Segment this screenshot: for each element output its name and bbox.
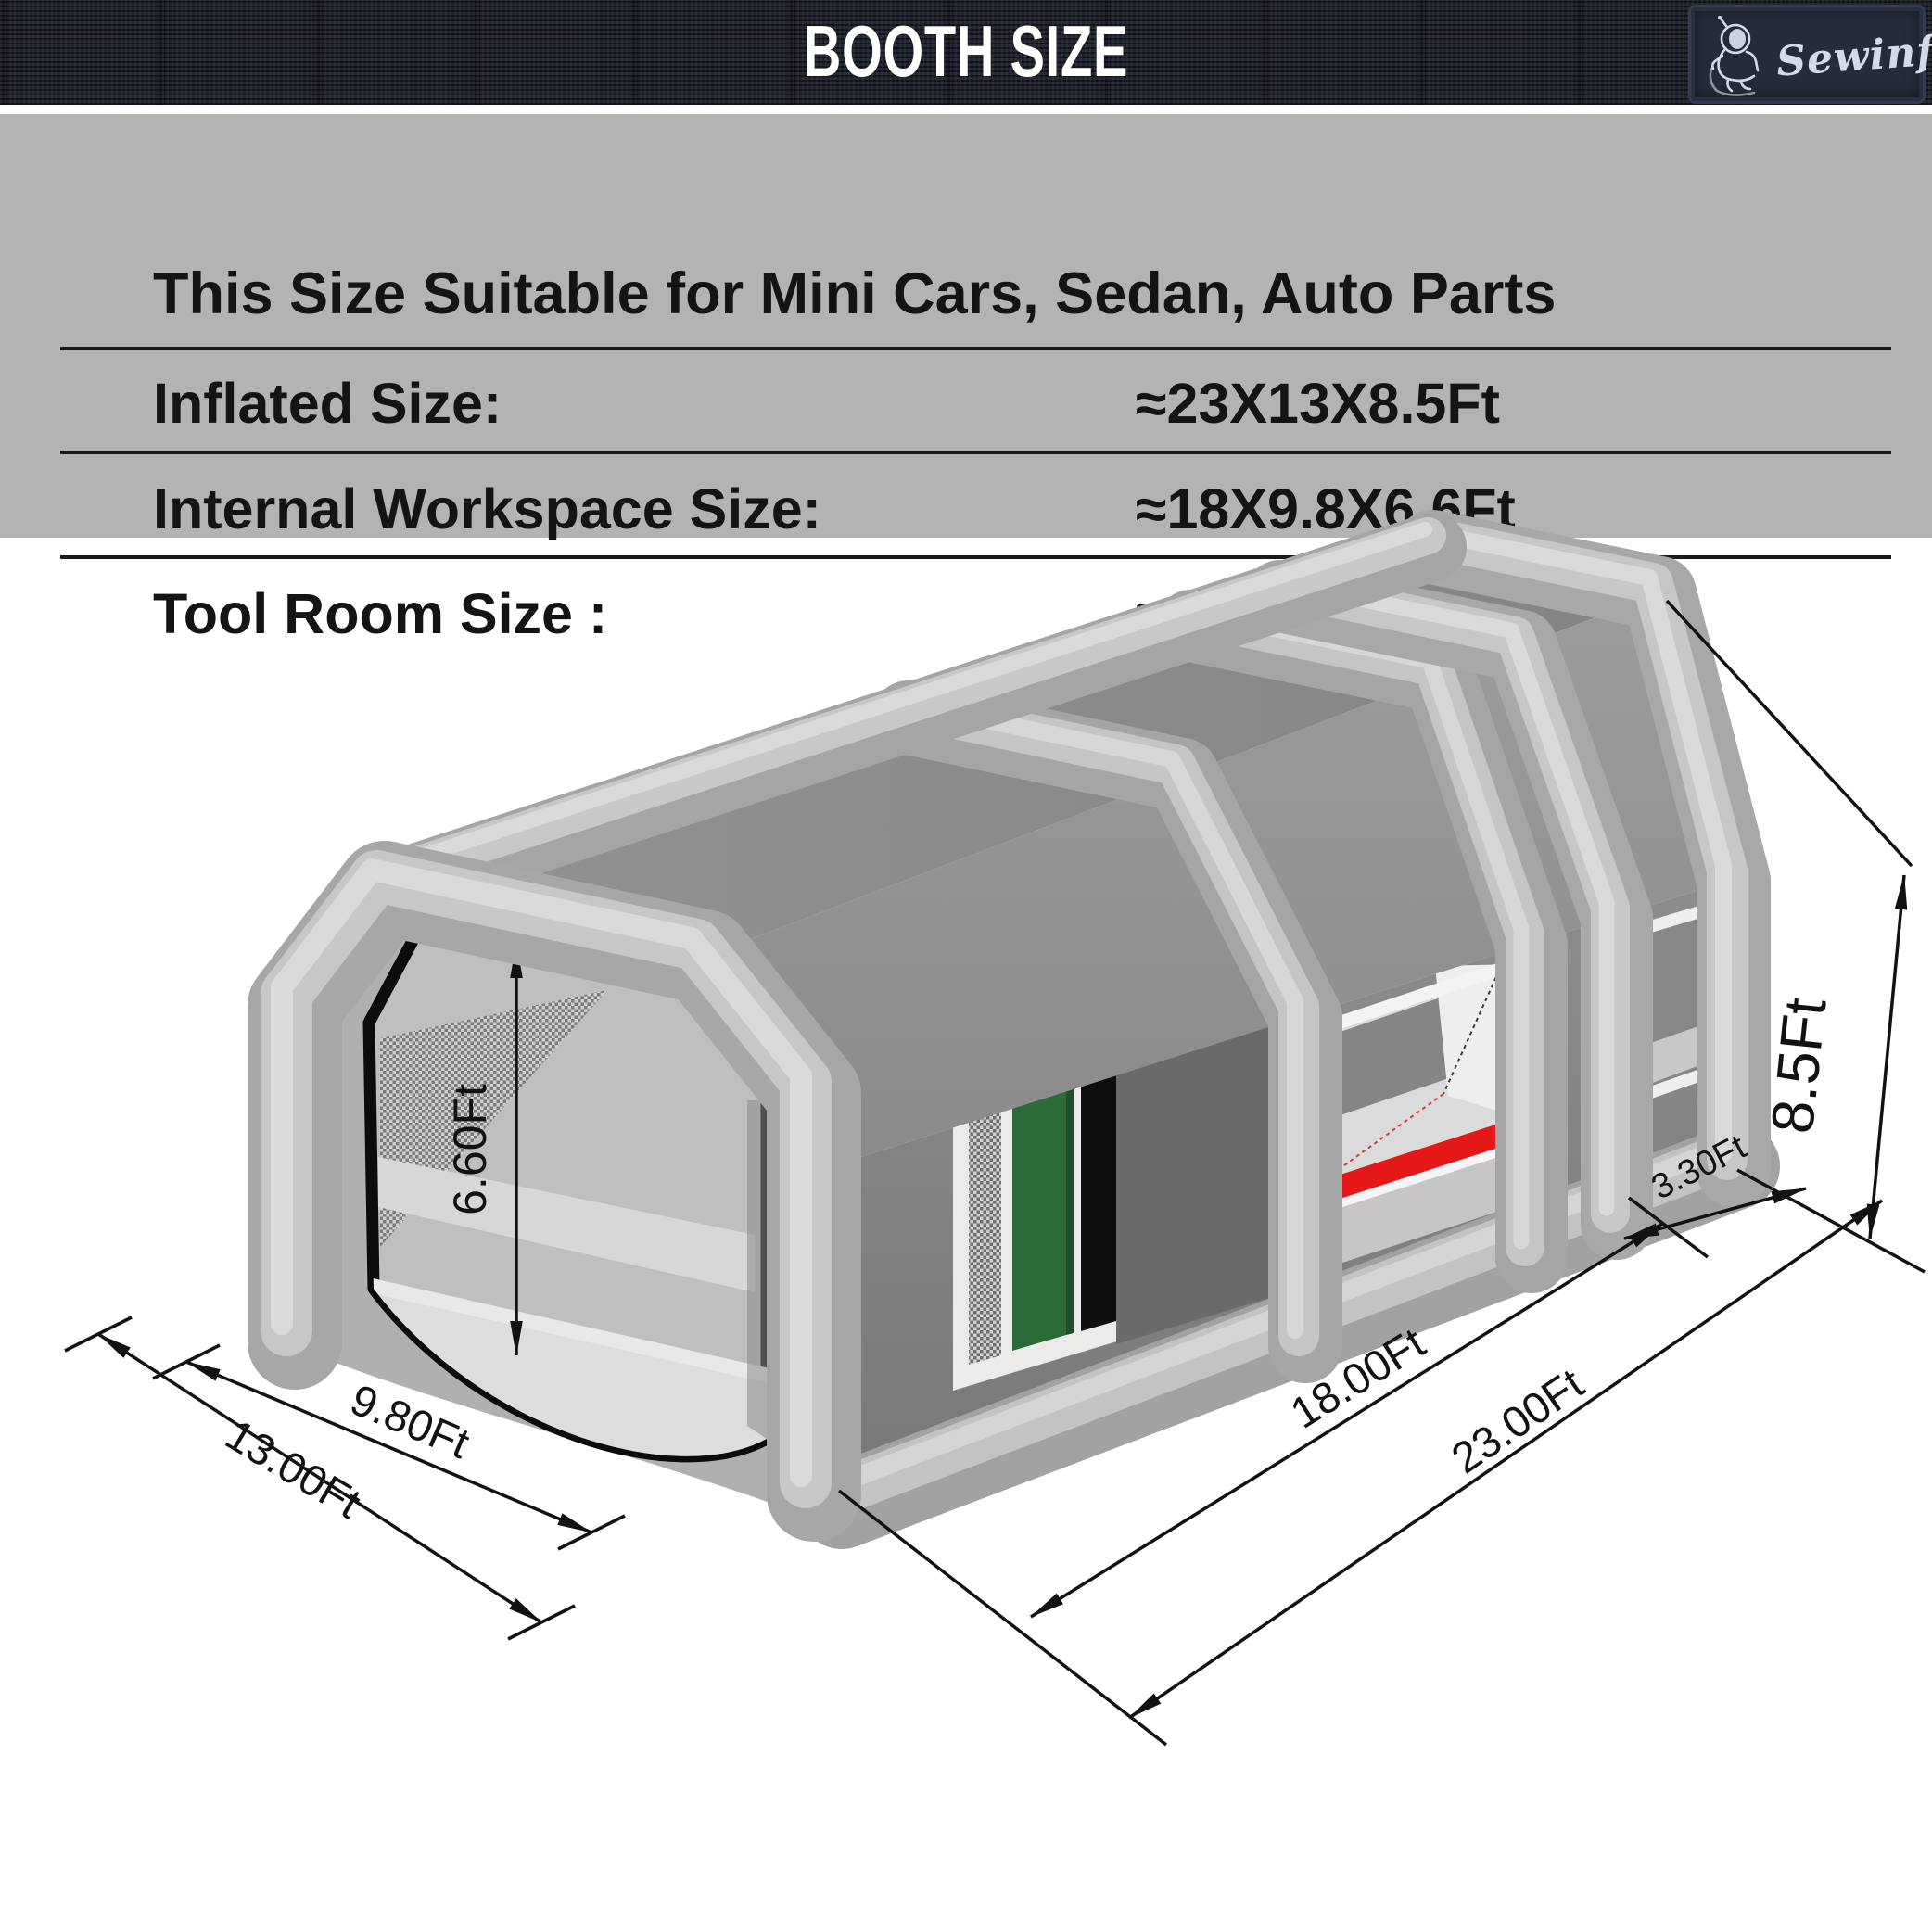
green-filter	[1012, 1080, 1066, 1351]
mesh-filter	[969, 1099, 1001, 1365]
dimension-label-door-height: 6.60Ft	[444, 1084, 496, 1215]
dimension-label-total-length: 23.00Ft	[1443, 1358, 1592, 1482]
booth-diagram: 6.60Ft	[0, 0, 1932, 1932]
dimension-label-front-outer-width: 13.00Ft	[218, 1409, 370, 1528]
page: BOOTH SIZE Sewinfla This Size Suitable f…	[0, 0, 1932, 1932]
booth-illustration: 6.60Ft	[248, 529, 1737, 1528]
dimension-label-total-height: 8.5Ft	[1759, 995, 1839, 1137]
